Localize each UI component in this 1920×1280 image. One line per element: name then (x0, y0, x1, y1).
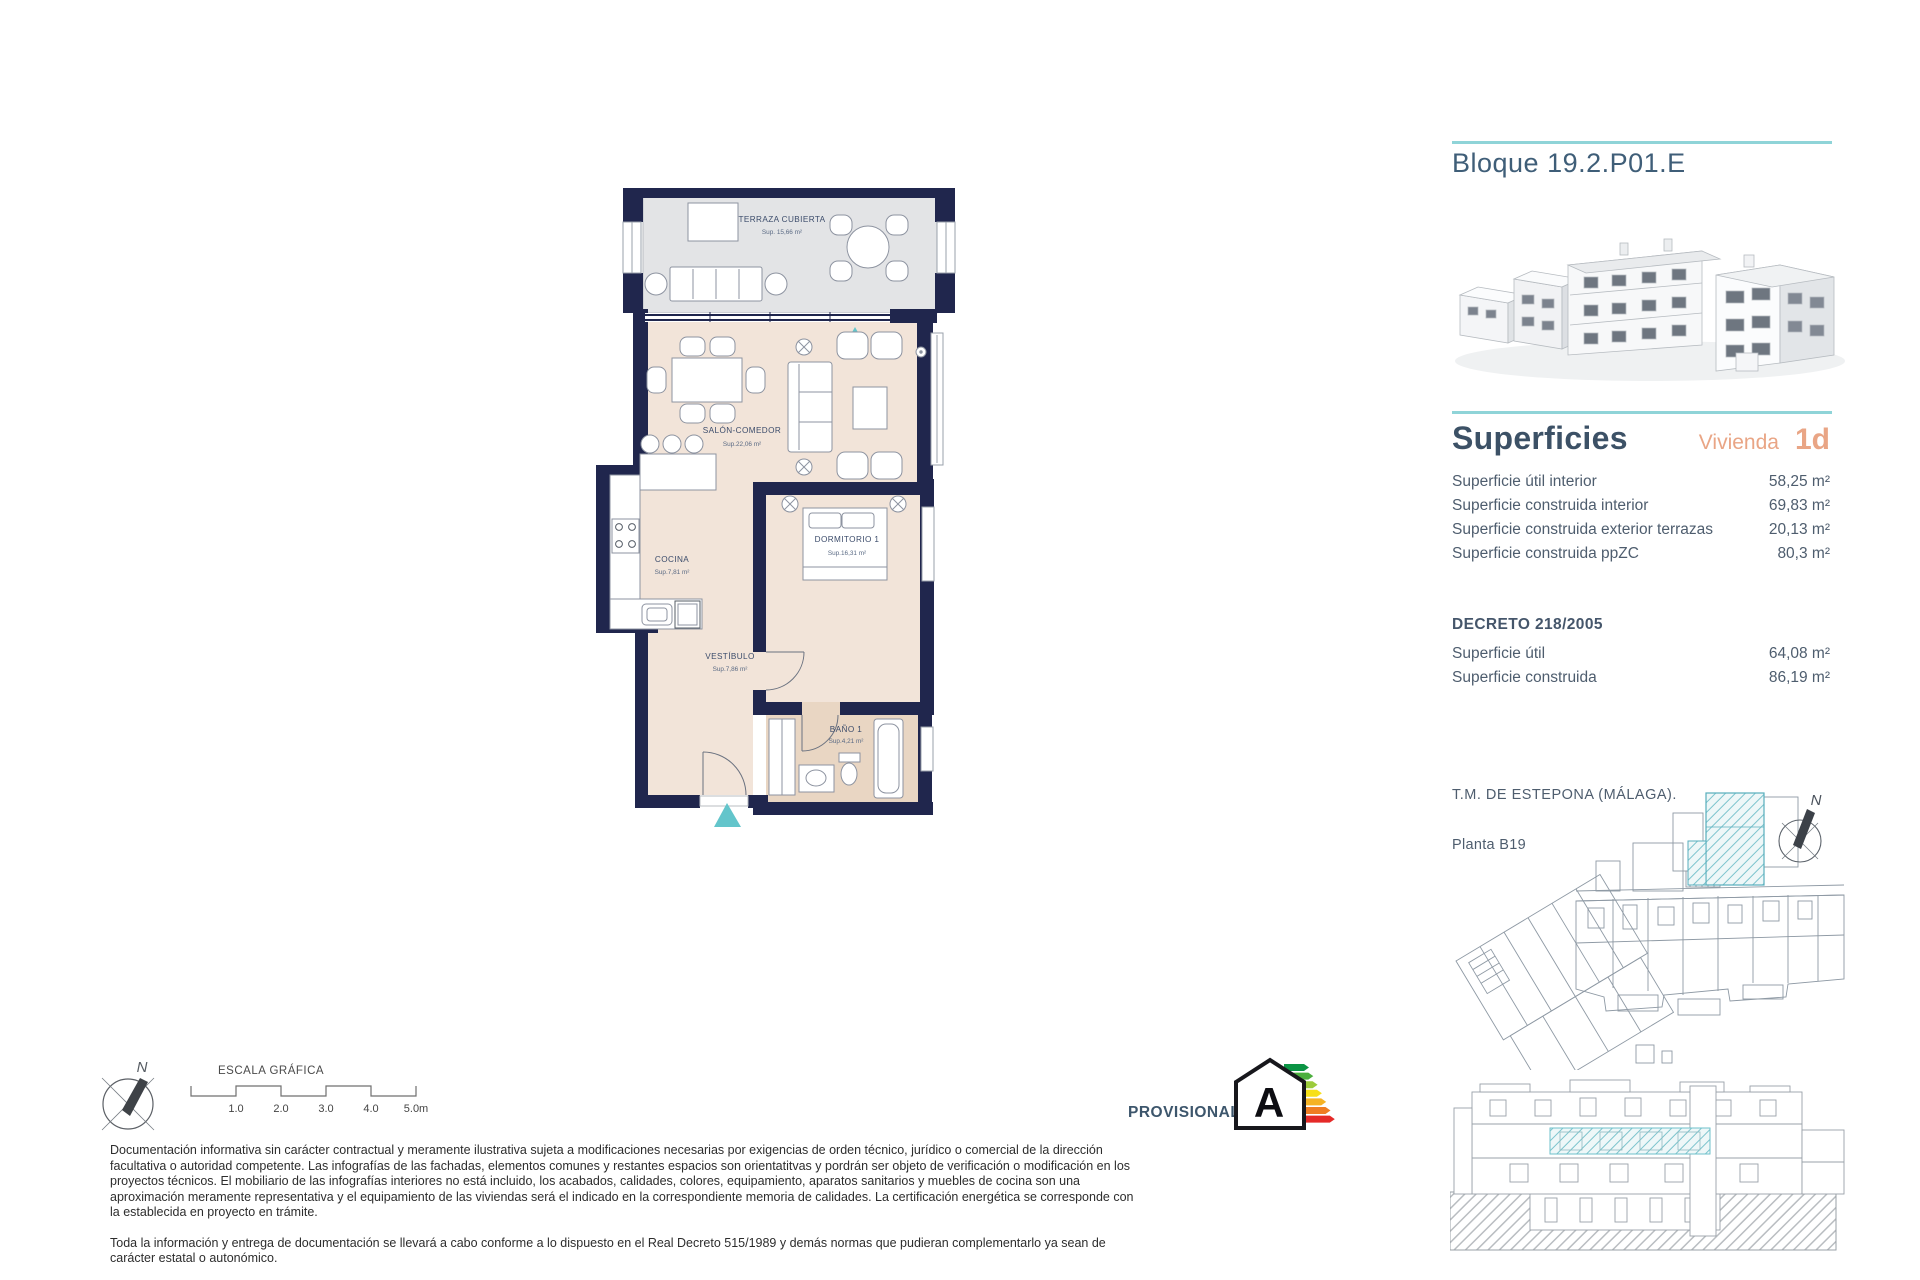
brochure-page: TERRAZA CUBIERTA Sup. 15,66 m² SALÓN-COM… (0, 0, 1920, 1280)
room-area-vestibulo: Sup.7,86 m² (713, 666, 748, 673)
room-area-bano: Sup.4,21 m² (829, 738, 864, 745)
row-label: Superficie construida exterior terrazas (1452, 518, 1713, 542)
table-row: Superficie construida 86,19 m² (1452, 666, 1830, 690)
scale-bar-title: ESCALA GRÁFICA (218, 1064, 324, 1077)
disclaimer-paragraph: Documentación informativa sin carácter c… (110, 1143, 1144, 1221)
row-value: 58,25 m² (1769, 470, 1830, 494)
decreto-title: DECRETO 218/2005 (1452, 616, 1830, 634)
superficies-title: Superficies (1452, 420, 1628, 457)
room-area-salon: Sup.22,06 m² (723, 441, 761, 448)
sliding-glass-door (645, 312, 890, 322)
provisional-label: PROVISIONAL (1128, 1104, 1240, 1122)
room-area-terraza: Sup. 15,66 m² (762, 229, 802, 236)
compass-needle (122, 1078, 148, 1116)
vivienda-unit-code: 1d (1795, 423, 1830, 457)
room-label-vestibulo: VESTÍBULO (705, 651, 755, 661)
bathroom-door-opening (802, 702, 840, 715)
row-label: Superficie construida ppZC (1452, 542, 1639, 566)
room-area-dormitorio: Sup.16,31 m² (828, 550, 866, 557)
scale-tick-label: 1.0 (228, 1103, 243, 1115)
superficies-table: Superficie útil interior 58,25 m² Superf… (1452, 470, 1830, 566)
room-area-cocina: Sup.7,81 m² (655, 569, 690, 576)
scale-tick-label: 3.0 (318, 1103, 333, 1115)
highlighted-unit (1688, 793, 1764, 885)
highlighted-floor (1550, 1128, 1710, 1154)
compass-rose: N (92, 1058, 172, 1138)
table-row: Superficie útil interior 58,25 m² (1452, 470, 1830, 494)
row-label: Superficie útil interior (1452, 470, 1597, 494)
row-value: 20,13 m² (1769, 518, 1830, 542)
bedroom-furniture (803, 508, 887, 580)
room-label-cocina: COCINA (655, 555, 689, 564)
table-row: Superficie construida exterior terrazas … (1452, 518, 1830, 542)
energy-rating-icon: A (1226, 1056, 1356, 1134)
table-row: Superficie útil 64,08 m² (1452, 642, 1830, 666)
vivienda-label: Vivienda (1699, 431, 1779, 455)
row-label: Superficie útil (1452, 642, 1545, 666)
table-row: Superficie construida ppZC 80,3 m² (1452, 542, 1830, 566)
block-title: Bloque 19.2.P01.E (1452, 148, 1686, 179)
row-value: 80,3 m² (1777, 542, 1830, 566)
energy-rating-letter: A (1254, 1079, 1284, 1126)
bedroom-door-opening (753, 652, 766, 690)
disclaimer-paragraph: Toda la información y entrega de documen… (110, 1236, 1144, 1267)
decreto-section: DECRETO 218/2005 Superficie útil 64,08 m… (1452, 616, 1830, 690)
site-compass-north-label: N (1811, 792, 1822, 809)
compass-north-label: N (137, 1059, 148, 1076)
room-label-salon: SALÓN-COMEDOR (703, 425, 781, 435)
scale-bar: ESCALA GRÁFICA 1.0 2.0 3.0 4.0 5.0m (188, 1060, 438, 1120)
row-value: 69,83 m² (1769, 494, 1830, 518)
table-row: Superficie construida interior 69,83 m² (1452, 494, 1830, 518)
row-value: 64,08 m² (1769, 642, 1830, 666)
main-entry-marker-icon (714, 803, 741, 827)
site-compass-rose: N (1779, 792, 1822, 862)
site-key-plan: N (1448, 783, 1850, 1070)
floor-plan: TERRAZA CUBIERTA Sup. 15,66 m² SALÓN-COM… (590, 175, 980, 855)
row-label: Superficie construida interior (1452, 494, 1648, 518)
building-3d-render (1450, 203, 1850, 393)
teal-divider-top (1452, 141, 1832, 144)
scale-tick-label: 5.0m (404, 1103, 428, 1115)
scale-tick-label: 2.0 (273, 1103, 288, 1115)
building-section (1450, 1072, 1850, 1272)
superficies-header: Superficies Vivienda 1d (1452, 420, 1830, 457)
legal-disclaimer: Documentación informativa sin carácter c… (110, 1143, 1144, 1280)
room-label-dormitorio: DORMITORIO 1 (815, 535, 880, 544)
row-value: 86,19 m² (1769, 666, 1830, 690)
entrance-threshold (700, 796, 748, 806)
teal-divider-superficies (1452, 411, 1832, 414)
room-label-bano: BAÑO 1 (830, 724, 862, 734)
scale-bar-ruler (191, 1086, 416, 1096)
room-label-terraza: TERRAZA CUBIERTA (738, 215, 825, 224)
scale-tick-label: 4.0 (363, 1103, 378, 1115)
row-label: Superficie construida (1452, 666, 1597, 690)
